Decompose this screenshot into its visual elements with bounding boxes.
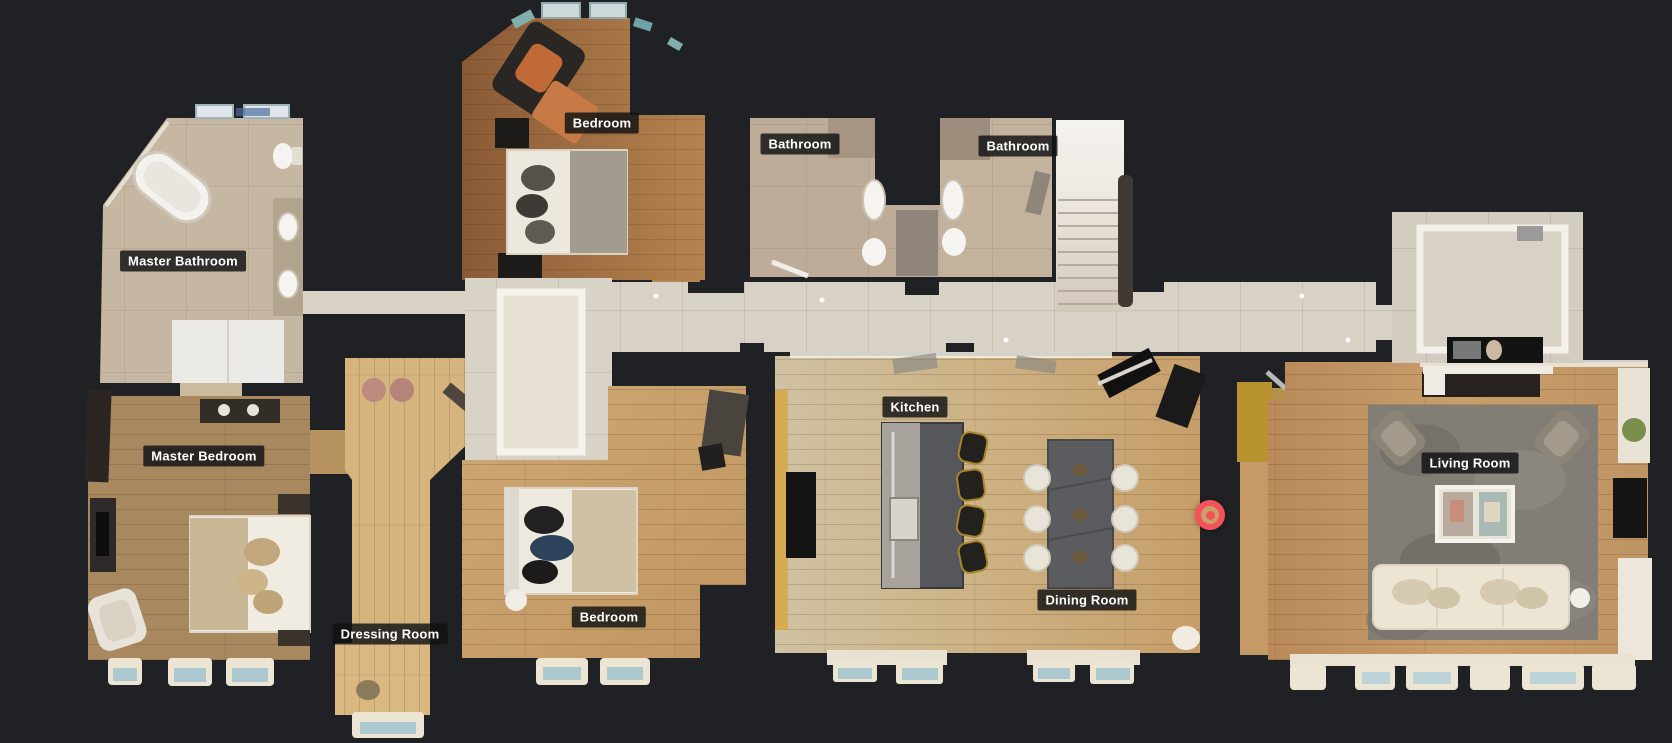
room-label-dressing-room[interactable]: Dressing Room xyxy=(333,624,448,645)
dining-table-icon xyxy=(1048,440,1113,588)
room-label-living-room[interactable]: Living Room xyxy=(1422,453,1519,474)
master-bedroom-bay-windows xyxy=(108,658,274,686)
room-label-master-bathroom[interactable]: Master Bathroom xyxy=(120,251,246,272)
position-marker-ring xyxy=(1201,506,1219,524)
dressing-room-bay-window xyxy=(352,712,424,738)
entrance-rug xyxy=(1420,228,1565,350)
floorplan-stage: Master BathroomMaster BedroomDressing Ro… xyxy=(0,0,1672,743)
room-label-master-bedroom[interactable]: Master Bedroom xyxy=(143,446,264,467)
stair-railing xyxy=(1118,175,1133,307)
fireplace-icon xyxy=(1613,478,1647,538)
window-seat xyxy=(1618,368,1650,463)
room-label-kitchen[interactable]: Kitchen xyxy=(882,397,947,418)
lamp-icon xyxy=(505,589,527,611)
room-label-bathroom-1[interactable]: Bathroom xyxy=(761,134,840,155)
floor-lamp-icon xyxy=(1570,588,1590,608)
bed-icon xyxy=(505,488,637,594)
room-label-bedroom-2[interactable]: Bedroom xyxy=(572,607,646,628)
coffee-table-icon xyxy=(1437,487,1513,541)
sofa-icon xyxy=(1373,565,1569,629)
plant-icon xyxy=(1622,418,1646,442)
room-entrance-hall-floor[interactable] xyxy=(1392,212,1583,374)
room-label-dining-room[interactable]: Dining Room xyxy=(1037,590,1136,611)
position-marker[interactable] xyxy=(1195,500,1225,530)
hall-rug xyxy=(500,292,582,452)
master-suite-corridor[interactable] xyxy=(303,291,470,314)
room-label-bathroom-2[interactable]: Bathroom xyxy=(979,136,1058,157)
room-label-bedroom-1[interactable]: Bedroom xyxy=(565,113,639,134)
bed-icon xyxy=(190,516,310,632)
staircase[interactable] xyxy=(1056,120,1133,312)
position-marker-core xyxy=(1206,511,1215,520)
kitchen-island-icon xyxy=(882,423,963,588)
floorplan-graphic xyxy=(0,0,1672,743)
master-bath-doorway[interactable] xyxy=(180,383,242,397)
floorplan-canvas[interactable] xyxy=(0,0,1672,743)
gold-sideboard-icon xyxy=(1237,382,1272,462)
